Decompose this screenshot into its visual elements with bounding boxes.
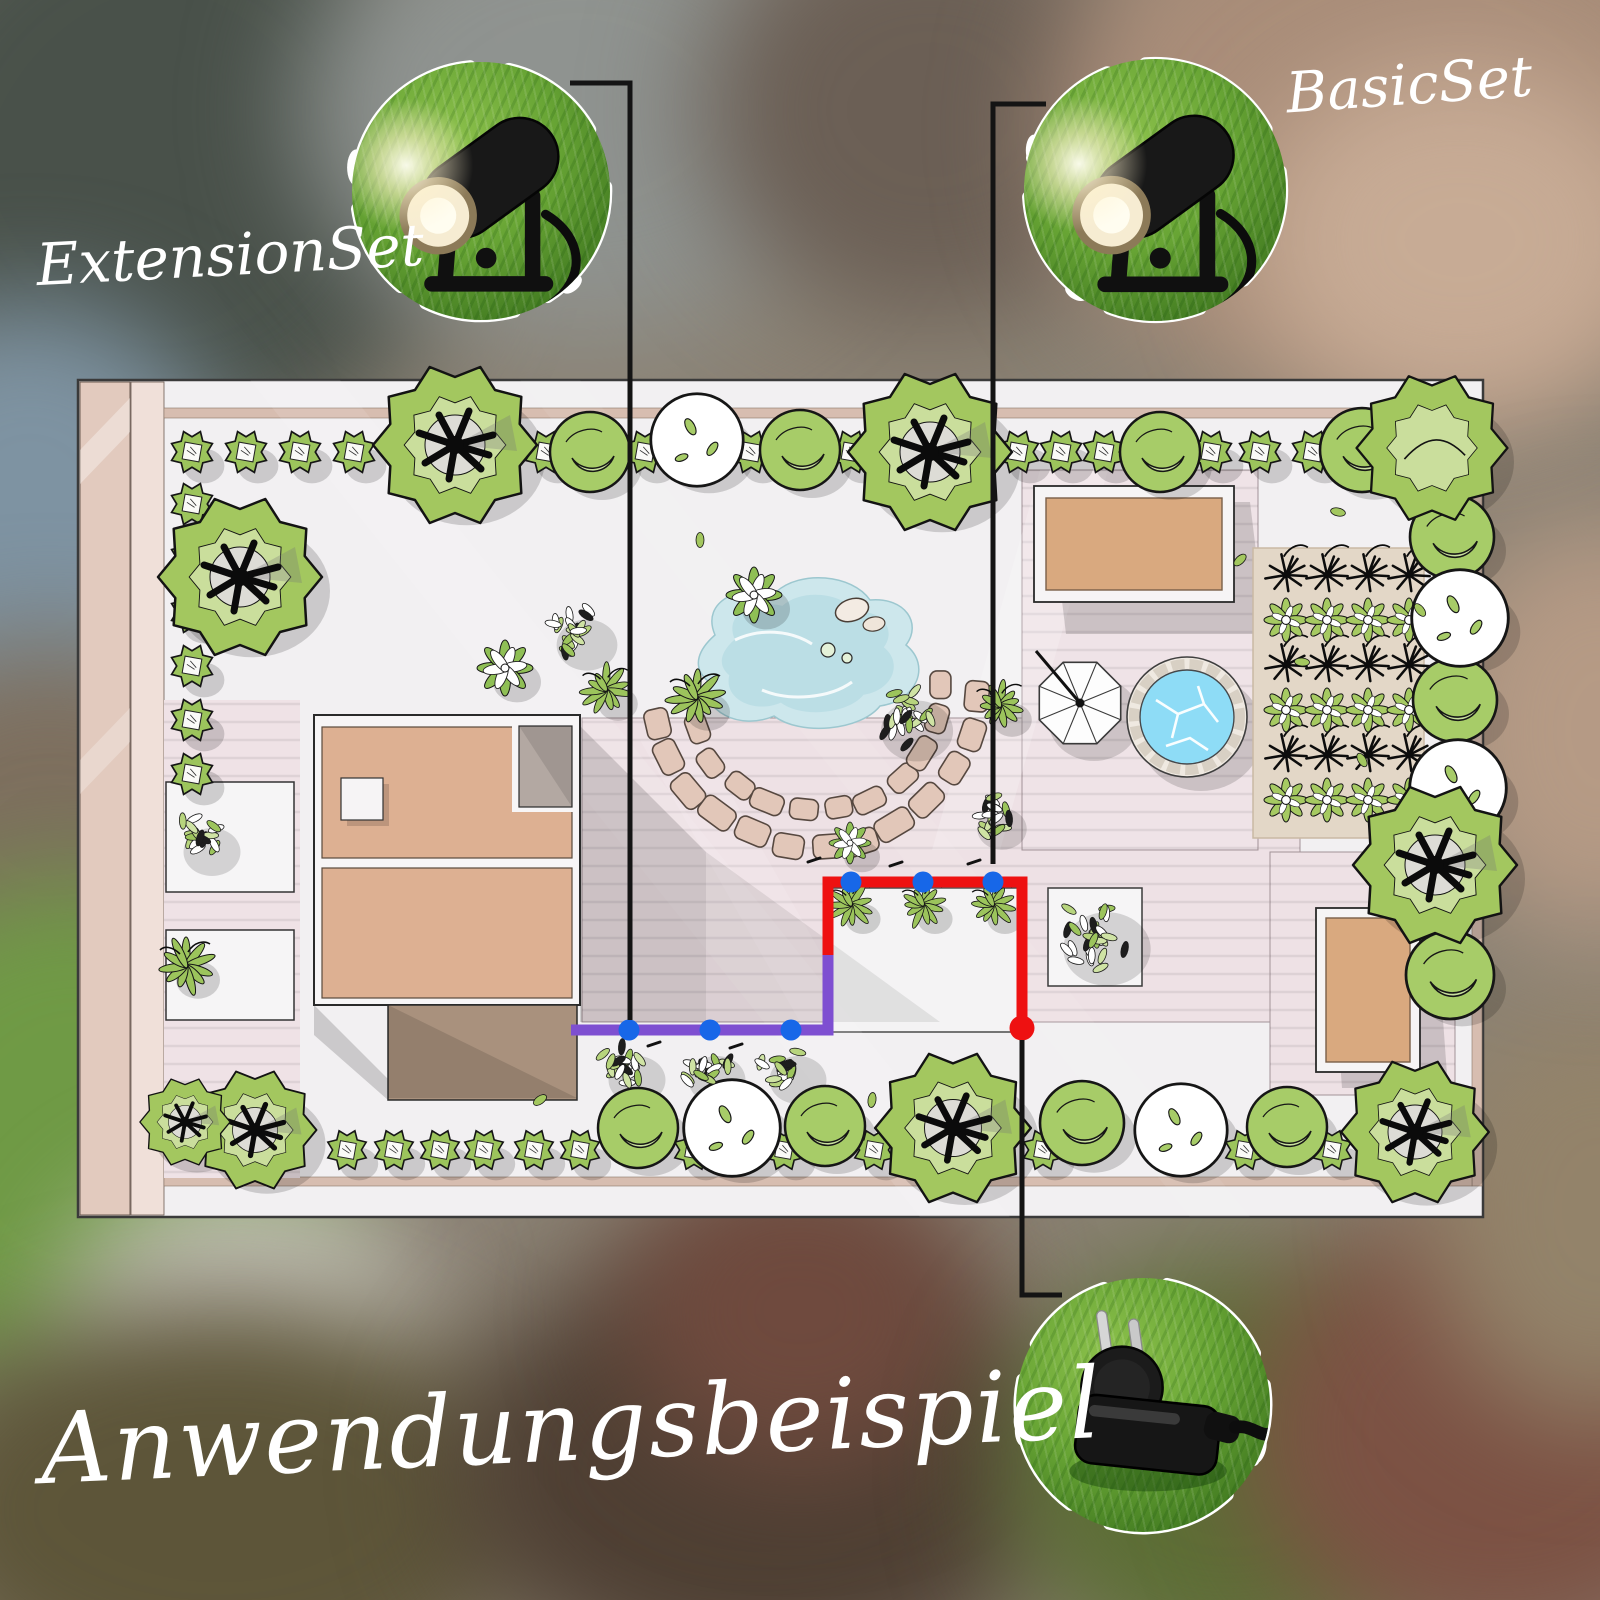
basic-set-photo (1024, 59, 1286, 321)
basic-set-label: BasicSet (1284, 49, 1534, 122)
extension-set-photo (352, 62, 610, 320)
garden-spotlight-icon (1024, 59, 1286, 321)
garden-spotlight-icon (352, 62, 610, 320)
power-connector-marker (1010, 1016, 1035, 1041)
basic-set-callout (1024, 59, 1286, 321)
application-example-poster: { "heading": { "text": "Anwendungsbeispi… (0, 0, 1600, 1600)
extension-set-callout (352, 62, 610, 320)
garden-table-top (1034, 486, 1266, 634)
